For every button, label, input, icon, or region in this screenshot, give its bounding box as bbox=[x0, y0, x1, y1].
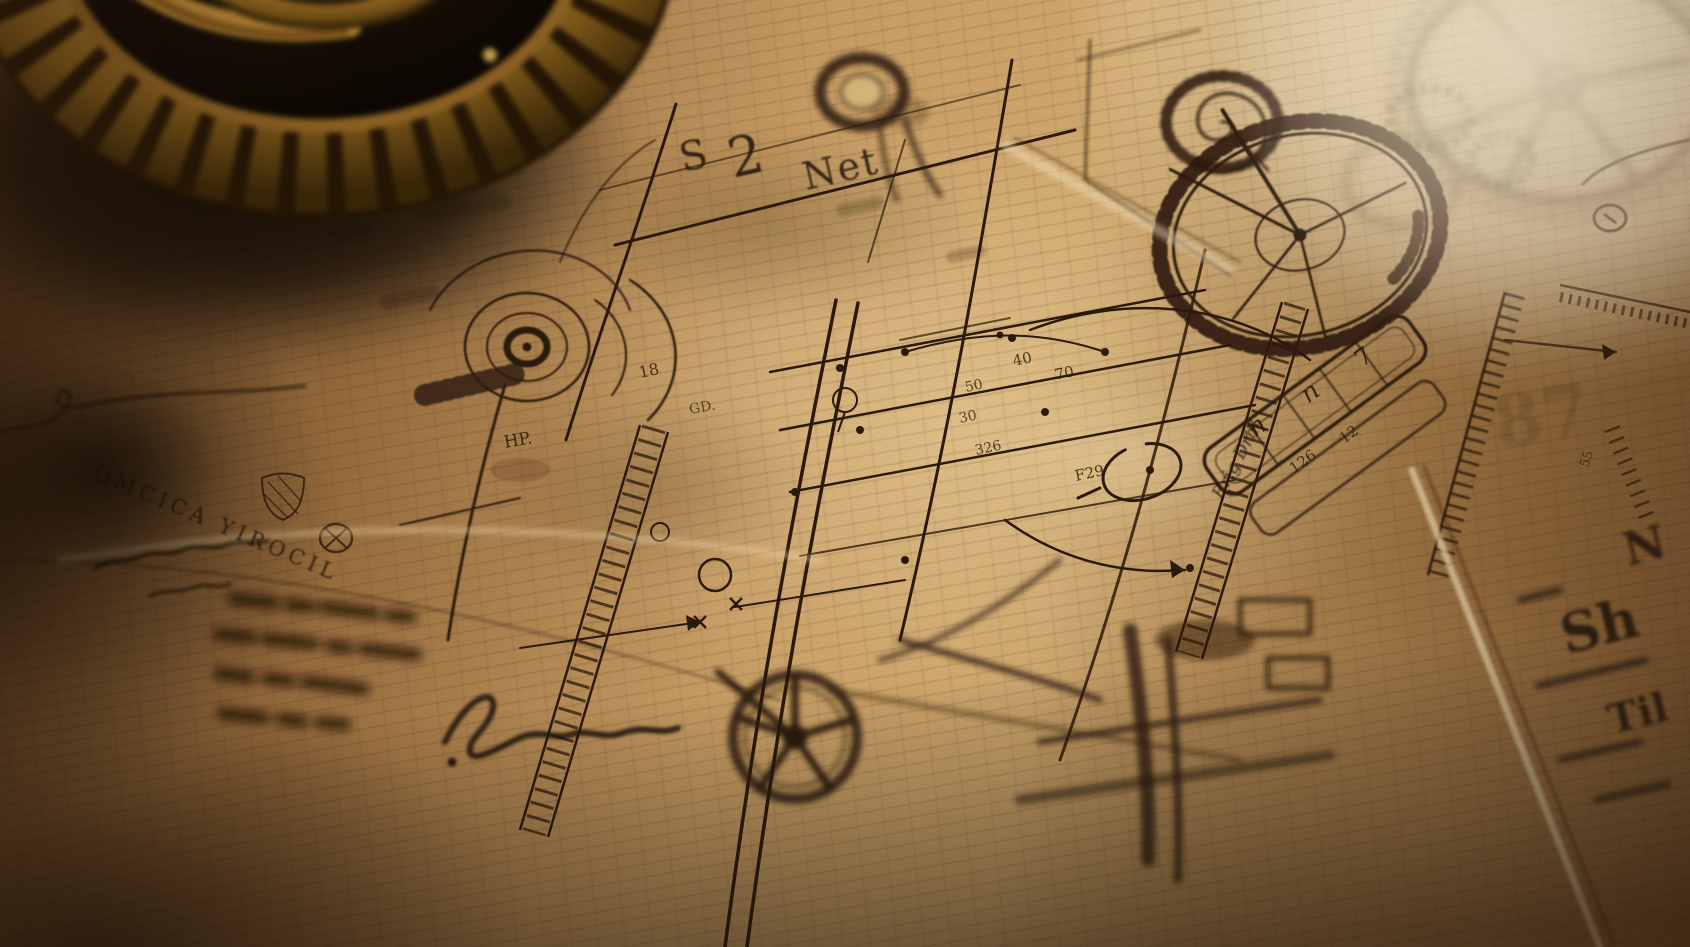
curve-links bbox=[520, 308, 1616, 648]
ruler-number: 55 bbox=[1578, 449, 1597, 469]
grid-number-f29: F29 bbox=[1073, 461, 1106, 485]
cross-ticks bbox=[694, 598, 742, 628]
title-letter-s: S bbox=[675, 131, 712, 182]
edge-letter-n: N bbox=[1618, 514, 1672, 577]
bar-number-126: 126 bbox=[1286, 446, 1320, 477]
flywheel-sketch bbox=[718, 672, 857, 799]
edge-letter-sh: Sh bbox=[1554, 586, 1645, 667]
grid-number-30: 30 bbox=[958, 408, 979, 427]
compass-wheel-sketch bbox=[1346, 0, 1690, 226]
blueprint-drawing: S 2 Net OMCICA YIROCIL 18 HP. GD. 40 70 … bbox=[0, 0, 1690, 947]
bar-letter-n2: n bbox=[1294, 376, 1325, 410]
machinery-cluster bbox=[830, 560, 1330, 880]
dial-number: 18 bbox=[637, 359, 661, 382]
grid-number-70: 70 bbox=[1053, 362, 1075, 384]
photo-scene: S 2 Net OMCICA YIROCIL 18 HP. GD. 40 70 … bbox=[0, 0, 1690, 947]
grid-number-40: 40 bbox=[1011, 348, 1033, 370]
stamp-label: GD. bbox=[688, 398, 717, 418]
watermark-number: 87 bbox=[1487, 366, 1597, 465]
edge-letter-til: Til bbox=[1603, 684, 1673, 744]
dial-label: HP. bbox=[502, 428, 533, 453]
title-word-net: Net bbox=[798, 139, 883, 199]
grid-number-326: 326 bbox=[974, 438, 1004, 459]
circle-annotations bbox=[262, 388, 857, 591]
ink-smudges bbox=[331, 192, 987, 311]
arrowheads bbox=[686, 344, 1616, 631]
title-letter-2: 2 bbox=[722, 122, 770, 191]
